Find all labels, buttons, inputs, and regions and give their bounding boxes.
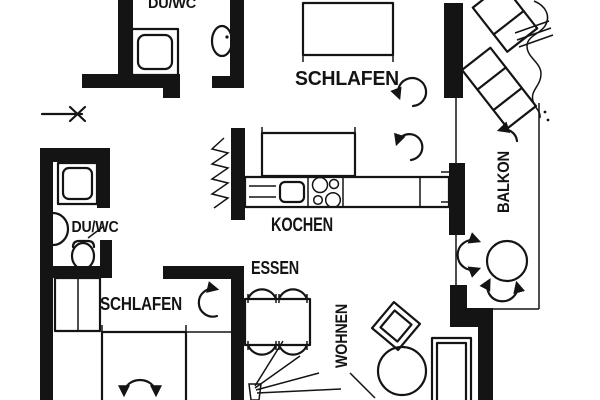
wall-segment bbox=[212, 76, 244, 88]
door-swing-icon bbox=[398, 78, 426, 106]
door-swing-icon bbox=[500, 129, 517, 141]
coffee-table-icon bbox=[378, 347, 426, 395]
balcony-table-icon bbox=[487, 241, 527, 281]
door-swing-icon bbox=[458, 240, 478, 270]
bed-icon bbox=[303, 3, 393, 62]
wall-segment bbox=[231, 267, 244, 400]
room-label-duwc-lower: DU/WC bbox=[72, 219, 120, 236]
door-swing-icon bbox=[397, 134, 422, 160]
lounge-chair-icon bbox=[462, 48, 536, 128]
room-label-schlafen-lower: SCHLAFEN bbox=[100, 294, 182, 314]
room-label-schlafen-top: SCHLAFEN bbox=[295, 68, 399, 90]
room-label-essen: ESSEN bbox=[251, 258, 299, 278]
dining-area bbox=[245, 289, 375, 400]
sofa-icon bbox=[432, 338, 471, 400]
armchair-icon bbox=[372, 302, 420, 350]
plant-squiggle-icon bbox=[515, 1, 553, 121]
room-label-balkon: BALKON bbox=[494, 151, 513, 213]
floor-plan: DU/WC SCHLAFEN KOCHEN ESSEN WOHNEN BALKO… bbox=[0, 0, 600, 400]
bed-icon bbox=[102, 325, 186, 400]
dining-table-icon bbox=[245, 299, 310, 345]
washbasin-icon bbox=[212, 26, 232, 56]
wall-segment bbox=[449, 163, 465, 235]
wall-segment bbox=[100, 240, 112, 268]
toilet-icon bbox=[72, 241, 94, 269]
bathroom-lower bbox=[53, 163, 97, 269]
room-label-wohnen: WOHNEN bbox=[332, 304, 351, 368]
wall-segment bbox=[444, 3, 463, 98]
plant-icon bbox=[249, 341, 375, 400]
kitchen-cabinet-icon bbox=[262, 127, 355, 176]
kitchen-counter-icon bbox=[245, 177, 449, 207]
room-label-duwc-top: DU/WC bbox=[148, 0, 196, 12]
kitchen bbox=[212, 127, 449, 208]
shower-icon bbox=[58, 163, 97, 204]
door-swing-icon bbox=[199, 289, 217, 317]
wall-segment bbox=[231, 128, 245, 220]
wall-segment bbox=[118, 0, 133, 78]
wall-segment bbox=[97, 148, 110, 208]
door-swing-icon bbox=[124, 380, 156, 394]
walls bbox=[40, 0, 493, 400]
shower-icon bbox=[132, 29, 178, 75]
floorplan-canvas: DU/WC SCHLAFEN KOCHEN ESSEN WOHNEN BALKO… bbox=[0, 0, 600, 400]
radiator-hatch-icon bbox=[212, 138, 228, 208]
washbasin-icon bbox=[53, 213, 68, 245]
wall-segment bbox=[163, 88, 180, 98]
cooktop-icon bbox=[313, 178, 341, 208]
door-swing-icon bbox=[487, 281, 517, 301]
room-label-kochen: KOCHEN bbox=[271, 215, 333, 236]
bedroom-top bbox=[303, 3, 426, 106]
wall-segment bbox=[40, 266, 112, 278]
entrance-arrow-icon bbox=[42, 107, 85, 121]
sink-icon bbox=[249, 182, 304, 202]
bathroom-top bbox=[132, 26, 232, 75]
wardrobe-icon bbox=[55, 278, 100, 331]
